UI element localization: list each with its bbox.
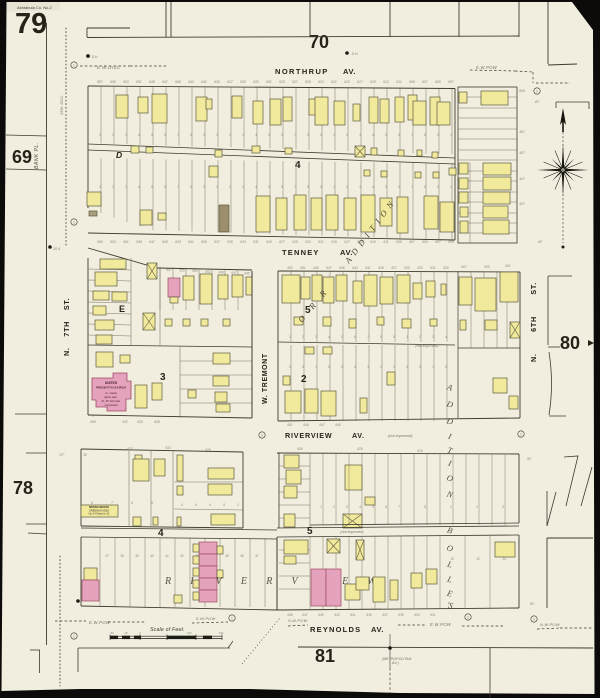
svg-text:4: 4 <box>209 503 211 507</box>
svg-text:639: 639 <box>214 80 220 84</box>
svg-text:9: 9 <box>203 185 205 189</box>
svg-text:45: 45 <box>225 554 229 558</box>
svg-text:613: 613 <box>370 240 376 244</box>
svg-text:4: 4 <box>138 133 140 137</box>
svg-text:2: 2 <box>301 335 304 339</box>
svg-text:651: 651 <box>205 270 211 274</box>
svg-text:655: 655 <box>97 240 103 244</box>
svg-text:8: 8 <box>307 133 309 137</box>
svg-text:25: 25 <box>123 631 128 635</box>
svg-text:1: 1 <box>406 335 408 339</box>
svg-text:1: 1 <box>261 433 263 437</box>
svg-text:9: 9 <box>393 335 395 339</box>
svg-text:2: 2 <box>228 185 231 189</box>
svg-text:(not improved): (not improved) <box>340 530 363 534</box>
svg-text:7: 7 <box>294 133 296 137</box>
svg-text:4: 4 <box>255 133 257 137</box>
svg-text:97': 97' <box>60 453 65 457</box>
svg-text:7: 7 <box>177 133 179 137</box>
svg-text:AV.: AV. <box>343 67 356 76</box>
svg-text:649: 649 <box>303 423 309 427</box>
svg-text:7: 7 <box>367 335 369 339</box>
svg-text:2: 2 <box>475 505 478 509</box>
svg-text:647: 647 <box>231 271 237 275</box>
svg-text:645: 645 <box>335 423 341 427</box>
svg-text:90': 90' <box>530 602 535 606</box>
svg-text:649: 649 <box>287 613 293 617</box>
svg-text:645: 645 <box>244 272 250 276</box>
svg-text:70: 70 <box>309 32 329 52</box>
svg-text:660: 660 <box>90 420 96 424</box>
svg-text:2: 2 <box>228 133 231 137</box>
svg-text:649: 649 <box>149 80 155 84</box>
svg-text:4: 4 <box>372 133 374 137</box>
svg-text:4: 4 <box>195 503 197 507</box>
svg-text:30: 30 <box>83 453 87 457</box>
svg-text:1: 1 <box>393 365 395 369</box>
svg-text:SEW. DISC.: SEW. DISC. <box>60 94 64 115</box>
svg-text:1: 1 <box>73 634 75 638</box>
svg-text:607: 607 <box>422 80 428 84</box>
svg-text:649: 649 <box>218 270 224 274</box>
svg-text:2: 2 <box>379 365 382 369</box>
svg-text:6: 6 <box>164 185 166 189</box>
svg-text:6: 6 <box>398 185 400 189</box>
svg-text:D: D <box>116 150 122 160</box>
svg-text:6: 6 <box>445 365 447 369</box>
svg-text:5: 5 <box>372 505 374 509</box>
svg-text:4: 4 <box>138 185 140 189</box>
svg-text:E: E <box>119 304 125 314</box>
svg-text:2: 2 <box>345 133 348 137</box>
svg-text:647: 647 <box>319 423 325 427</box>
svg-text:7: 7 <box>111 501 113 505</box>
svg-text:R: R <box>164 576 171 587</box>
svg-text:81: 81 <box>315 646 335 666</box>
svg-text:609: 609 <box>409 80 415 84</box>
svg-text:2: 2 <box>301 374 307 385</box>
svg-text:629: 629 <box>266 240 272 244</box>
svg-text:623: 623 <box>318 80 324 84</box>
svg-text:645: 645 <box>318 613 324 617</box>
svg-text:PRESBYT'N CHURCH: PRESBYT'N CHURCH <box>96 386 126 390</box>
svg-text:3: 3 <box>502 505 504 509</box>
svg-text:20.4': 20.4' <box>52 247 61 251</box>
svg-text:9: 9 <box>289 365 291 369</box>
svg-text:8: 8 <box>419 365 421 369</box>
svg-text:BANK PL.: BANK PL. <box>34 142 40 169</box>
svg-text:9: 9 <box>406 365 408 369</box>
svg-text:8: 8 <box>307 185 309 189</box>
svg-text:633: 633 <box>165 446 171 450</box>
svg-text:46: 46 <box>240 554 244 558</box>
svg-text:633: 633 <box>240 240 246 244</box>
svg-text:3: 3 <box>432 335 434 339</box>
svg-text:631: 631 <box>430 266 436 270</box>
svg-text:637: 637 <box>214 240 220 244</box>
svg-text:625: 625 <box>292 240 298 244</box>
svg-text:635: 635 <box>398 613 404 617</box>
svg-text:8: 8 <box>131 501 133 505</box>
svg-text:3: 3 <box>242 133 244 137</box>
svg-text:631: 631 <box>430 613 436 617</box>
svg-text:637: 637 <box>382 613 388 617</box>
svg-text:629: 629 <box>205 448 211 452</box>
svg-text:639: 639 <box>201 240 207 244</box>
svg-text:1: 1 <box>73 63 75 67</box>
svg-text:N. 7TH ST.: N. 7TH ST. <box>62 298 71 356</box>
svg-text:4: 4 <box>359 505 361 509</box>
svg-text:3: 3 <box>125 133 127 137</box>
svg-text:6: 6 <box>91 501 93 505</box>
svg-text:7: 7 <box>177 185 179 189</box>
svg-text:1: 1 <box>231 616 233 620</box>
svg-text:8: 8 <box>302 365 304 369</box>
svg-text:447: 447 <box>519 177 525 181</box>
svg-text:611: 611 <box>396 80 402 84</box>
svg-text:1: 1 <box>520 432 522 436</box>
svg-text:605: 605 <box>484 265 490 269</box>
svg-text:150: 150 <box>219 631 224 635</box>
svg-text:635: 635 <box>227 240 233 244</box>
svg-text:641: 641 <box>188 240 194 244</box>
svg-text:621: 621 <box>318 240 324 244</box>
svg-text:REYNOLDS: REYNOLDS <box>310 625 361 634</box>
svg-text:1: 1 <box>467 615 469 619</box>
svg-text:N. 6TH ST.: N. 6TH ST. <box>529 282 538 362</box>
svg-text:641: 641 <box>201 80 207 84</box>
svg-text:641: 641 <box>365 266 371 270</box>
svg-text:647: 647 <box>302 613 308 617</box>
svg-text:3: 3 <box>367 365 369 369</box>
svg-text:7: 7 <box>315 365 317 369</box>
svg-text:647: 647 <box>149 240 155 244</box>
svg-text:E.W.POW: E.W.POW <box>196 616 216 621</box>
svg-text:5: 5 <box>151 133 153 137</box>
svg-text:5: 5 <box>307 526 313 537</box>
svg-text:8: 8 <box>190 133 192 137</box>
svg-text:643: 643 <box>352 266 358 270</box>
svg-text:5: 5 <box>223 503 225 507</box>
svg-text:5: 5 <box>341 365 343 369</box>
svg-text:619: 619 <box>331 240 337 244</box>
svg-text:645: 645 <box>175 80 181 84</box>
svg-text:3: 3 <box>315 335 317 339</box>
svg-text:657: 657 <box>448 80 454 84</box>
svg-text:2: 2 <box>345 185 348 189</box>
svg-text:637: 637 <box>391 266 397 270</box>
svg-text:10: 10 <box>450 557 454 561</box>
svg-text:7: 7 <box>411 133 413 137</box>
svg-text:41: 41 <box>165 554 169 558</box>
svg-text:630: 630 <box>137 420 143 424</box>
svg-text:2: 2 <box>111 185 114 189</box>
svg-text:633: 633 <box>417 266 423 270</box>
svg-text:D.H.: D.H. <box>352 52 359 56</box>
svg-text:9: 9 <box>320 133 322 137</box>
svg-text:633: 633 <box>414 613 420 617</box>
svg-text:610: 610 <box>417 449 423 453</box>
svg-text:651: 651 <box>300 266 306 270</box>
svg-text:30': 30' <box>527 457 532 461</box>
svg-text:617: 617 <box>344 240 350 244</box>
svg-text:80: 80 <box>560 333 580 353</box>
svg-text:645: 645 <box>339 266 345 270</box>
svg-text:47: 47 <box>255 554 259 558</box>
svg-text:635: 635 <box>404 266 410 270</box>
svg-text:69: 69 <box>12 147 32 167</box>
svg-text:640: 640 <box>297 447 303 451</box>
svg-text:I: I <box>189 576 194 587</box>
svg-text:5: 5 <box>385 185 387 189</box>
svg-text:AV.: AV. <box>352 431 365 440</box>
svg-text:655: 655 <box>110 80 116 84</box>
svg-text:1: 1 <box>99 185 101 189</box>
svg-text:R: R <box>265 576 272 587</box>
svg-text:E.W.POW: E.W.POW <box>89 620 111 625</box>
svg-text:38: 38 <box>120 554 124 558</box>
svg-text:635: 635 <box>240 80 246 84</box>
svg-text:7: 7 <box>411 185 413 189</box>
svg-text:657: 657 <box>166 268 172 272</box>
svg-text:8: 8 <box>424 505 426 509</box>
svg-text:641: 641 <box>350 613 356 617</box>
svg-text:647: 647 <box>326 266 332 270</box>
svg-text:TENNEY: TENNEY <box>282 248 320 257</box>
svg-text:Scale of Feet.: Scale of Feet. <box>150 627 185 633</box>
svg-text:647: 647 <box>162 80 168 84</box>
svg-text:617: 617 <box>357 80 363 84</box>
svg-text:4: 4 <box>372 185 374 189</box>
svg-text:608: 608 <box>519 89 525 93</box>
svg-text:9: 9 <box>437 185 439 189</box>
svg-text:627: 627 <box>279 240 285 244</box>
svg-text:8: 8 <box>424 133 426 137</box>
svg-text:609: 609 <box>396 240 402 244</box>
svg-text:3: 3 <box>359 133 361 137</box>
svg-text:6: 6 <box>328 365 330 369</box>
svg-text:D.H.: D.H. <box>92 55 99 59</box>
svg-text:4: 4 <box>354 365 356 369</box>
svg-text:643: 643 <box>188 80 194 84</box>
svg-text:625: 625 <box>305 80 311 84</box>
svg-text:643: 643 <box>175 240 181 244</box>
svg-text:1: 1 <box>289 335 291 339</box>
svg-text:615: 615 <box>370 80 376 84</box>
svg-text:633: 633 <box>253 80 259 84</box>
svg-text:E: E <box>240 576 247 587</box>
svg-text:2: 2 <box>418 335 421 339</box>
svg-text:No 24 Glass ht 12: No 24 Glass ht 12 <box>89 512 110 516</box>
svg-text:2: 2 <box>111 133 114 137</box>
svg-text:629: 629 <box>443 266 449 270</box>
svg-text:5: 5 <box>268 185 270 189</box>
svg-text:467: 467 <box>519 130 525 134</box>
svg-text:645: 645 <box>162 240 168 244</box>
svg-text:1: 1 <box>450 185 452 189</box>
svg-text:639: 639 <box>366 613 372 617</box>
svg-text:5: 5 <box>341 335 343 339</box>
svg-text:E.W.POW: E.W.POW <box>430 622 452 627</box>
svg-text:1: 1 <box>450 133 452 137</box>
svg-text:12: 12 <box>476 557 480 561</box>
svg-text:(not improved): (not improved) <box>415 344 438 348</box>
svg-text:(not improved): (not improved) <box>388 434 413 438</box>
svg-text:40: 40 <box>150 554 154 558</box>
svg-text:1: 1 <box>333 185 335 189</box>
svg-text:651: 651 <box>136 80 142 84</box>
svg-text:5: 5 <box>385 133 387 137</box>
svg-text:601: 601 <box>505 264 511 268</box>
svg-text:4: 4 <box>158 528 164 539</box>
svg-text:4: 4 <box>181 503 183 507</box>
svg-text:1: 1 <box>99 133 101 137</box>
svg-text:627: 627 <box>292 80 298 84</box>
svg-text:6: 6 <box>385 505 387 509</box>
svg-text:8: 8 <box>380 335 382 339</box>
svg-text:E.W.DISC: E.W.DISC <box>97 65 121 70</box>
svg-text:AV.: AV. <box>371 625 384 634</box>
svg-text:4: 4 <box>255 185 257 189</box>
svg-text:613: 613 <box>383 80 389 84</box>
svg-text:657: 657 <box>435 240 441 244</box>
svg-text:653: 653 <box>110 240 116 244</box>
svg-text:619: 619 <box>344 80 350 84</box>
svg-text:2: 2 <box>332 505 335 509</box>
svg-text:14: 14 <box>502 557 506 561</box>
svg-text:9: 9 <box>320 185 322 189</box>
svg-text:649: 649 <box>136 240 142 244</box>
svg-text:653: 653 <box>287 266 293 270</box>
svg-text:632: 632 <box>122 420 128 424</box>
svg-text:9: 9 <box>437 133 439 137</box>
svg-text:7: 7 <box>294 185 296 189</box>
svg-text:3: 3 <box>160 372 166 383</box>
svg-text:4: 4 <box>445 335 447 339</box>
svg-text:1: 1 <box>73 220 75 224</box>
svg-text:1: 1 <box>333 133 335 137</box>
svg-text:NORTHRUP: NORTHRUP <box>275 67 329 76</box>
svg-text:605: 605 <box>435 80 441 84</box>
svg-text:5: 5 <box>151 185 153 189</box>
svg-text:631: 631 <box>266 80 272 84</box>
svg-text:6: 6 <box>398 133 400 137</box>
svg-text:9: 9 <box>151 501 153 505</box>
svg-text:37: 37 <box>105 554 109 558</box>
svg-text:457: 457 <box>519 151 525 155</box>
svg-text:9: 9 <box>203 133 205 137</box>
svg-text:UNITED: UNITED <box>105 381 118 385</box>
svg-text:653: 653 <box>192 269 198 273</box>
svg-text:7: 7 <box>432 365 434 369</box>
svg-text:621: 621 <box>331 80 337 84</box>
svg-text:39: 39 <box>135 554 139 558</box>
svg-text:8: 8 <box>190 185 192 189</box>
svg-text:3: 3 <box>346 505 348 509</box>
svg-text:3: 3 <box>242 185 244 189</box>
svg-text:655: 655 <box>179 268 185 272</box>
svg-text:W. TREMONT: W. TREMONT <box>262 353 269 404</box>
svg-text:6: 6 <box>164 133 166 137</box>
svg-text:1: 1 <box>450 505 452 509</box>
svg-text:6: 6 <box>281 185 283 189</box>
svg-text:1: 1 <box>216 133 218 137</box>
svg-text:7: 7 <box>398 505 400 509</box>
svg-text:639: 639 <box>378 266 384 270</box>
svg-text:631: 631 <box>253 240 259 244</box>
svg-text:637: 637 <box>227 80 233 84</box>
svg-text:N.W.POW: N.W.POW <box>540 622 561 627</box>
svg-text:1: 1 <box>216 185 218 189</box>
svg-text:6: 6 <box>354 335 356 339</box>
svg-text:1: 1 <box>320 505 322 509</box>
svg-text:1: 1 <box>237 503 239 507</box>
svg-text:42: 42 <box>180 554 184 558</box>
svg-text:651: 651 <box>123 240 129 244</box>
svg-text:40': 40' <box>535 100 540 104</box>
svg-text:AV.): AV.) <box>391 661 399 665</box>
svg-text:623: 623 <box>305 240 311 244</box>
svg-text:1: 1 <box>536 89 538 93</box>
svg-text:643: 643 <box>334 613 340 617</box>
svg-text:3: 3 <box>359 185 361 189</box>
svg-text:620: 620 <box>357 447 363 451</box>
svg-text:629: 629 <box>279 80 285 84</box>
svg-text:50: 50 <box>110 631 114 635</box>
svg-text:5: 5 <box>268 133 270 137</box>
svg-text:E.W.POW: E.W.POW <box>476 65 498 70</box>
svg-text:RIVERVIEW: RIVERVIEW <box>285 431 332 440</box>
svg-text:653: 653 <box>123 80 129 84</box>
svg-text:1: 1 <box>533 617 535 621</box>
svg-text:637: 637 <box>127 447 133 451</box>
svg-text:607: 607 <box>409 240 415 244</box>
svg-text:6: 6 <box>281 133 283 137</box>
svg-text:4: 4 <box>328 335 330 339</box>
svg-text:657: 657 <box>97 80 103 84</box>
svg-text:651: 651 <box>287 423 293 427</box>
svg-text:78: 78 <box>13 478 33 498</box>
svg-text:437: 437 <box>519 202 525 206</box>
svg-text:605: 605 <box>422 240 428 244</box>
svg-text:655: 655 <box>448 240 454 244</box>
svg-text:100: 100 <box>187 631 192 635</box>
svg-text:79: 79 <box>15 8 47 40</box>
svg-text:3: 3 <box>125 185 127 189</box>
svg-text:40': 40' <box>538 240 543 244</box>
svg-text:S.W.POW: S.W.POW <box>288 618 308 623</box>
svg-text:611: 611 <box>383 240 388 244</box>
svg-text:composite: composite <box>105 403 118 407</box>
svg-text:607: 607 <box>461 265 467 269</box>
svg-text:8: 8 <box>424 185 426 189</box>
svg-text:628: 628 <box>154 420 160 424</box>
svg-text:649: 649 <box>313 266 319 270</box>
